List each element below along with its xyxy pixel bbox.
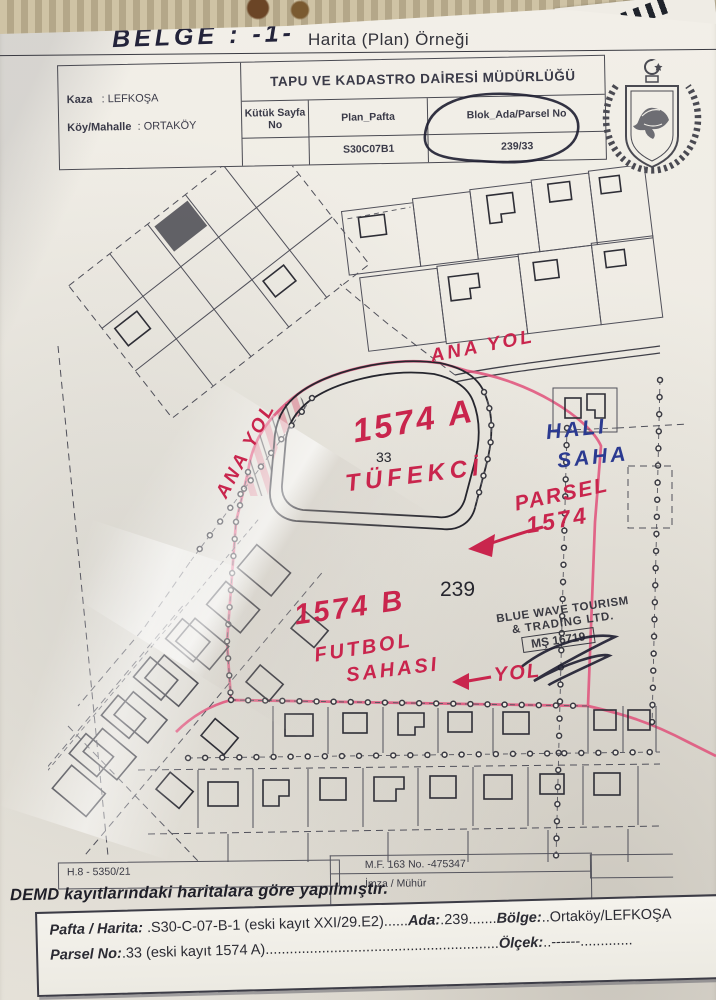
cadastral-map-svg: 33 239 bbox=[48, 166, 716, 862]
bottom-row-boundary-points bbox=[188, 752, 660, 758]
parcel-row-1 bbox=[273, 706, 656, 754]
bolge-label: Bölge: bbox=[496, 910, 542, 927]
pafta-label: Pafta / Harita: bbox=[49, 920, 143, 938]
parcel-row-2 bbox=[138, 764, 660, 834]
koy-label: Köy/Mahalle bbox=[67, 121, 131, 134]
parcel-block-topright bbox=[340, 166, 662, 354]
header-location-cell: Kaza : LEFKOŞA Köy/Mahalle : ORTAKÖY bbox=[58, 63, 243, 169]
handwritten-belge-label: BELGE : -1- bbox=[112, 19, 296, 54]
dove-icon bbox=[633, 108, 669, 139]
header-table: Kaza : LEFKOŞA Köy/Mahalle : ORTAKÖY TAP… bbox=[57, 55, 607, 171]
bottom-summary-box: Pafta / Harita: .S30-C-07-B-1 (eski kayı… bbox=[35, 894, 716, 997]
col-blok: Blok_Ada/Parsel No 239/33 bbox=[428, 95, 606, 162]
pink-line-extension-left bbox=[176, 700, 231, 732]
building-strip-far-left bbox=[48, 606, 216, 862]
ada-label: Ada: bbox=[408, 912, 441, 929]
parsel-no-label: Parsel No: bbox=[50, 946, 122, 964]
photographed-cadastral-document: { "doc": { "belge_label": "BELGE : -1-",… bbox=[0, 0, 716, 1000]
bolge-value: ..Ortaköy/LEFKOŞA bbox=[541, 906, 671, 925]
printed-parcel-33: 33 bbox=[376, 449, 392, 465]
col-blok-header: Blok_Ada/Parsel No bbox=[428, 95, 606, 135]
col-kutuk-header: Kütük Sayfa No bbox=[242, 100, 309, 138]
document-title: Harita (Plan) Örneği bbox=[308, 30, 469, 50]
emblem-collar bbox=[646, 76, 658, 82]
dark-hatched-parcel bbox=[154, 201, 207, 252]
olcek-label: Ölçek: bbox=[499, 935, 544, 952]
document-paper: BELGE : -1- Harita (Plan) Örneği Kaza : … bbox=[0, 0, 716, 1000]
printed-block-239: 239 bbox=[440, 578, 475, 601]
ada-value: .239....... bbox=[440, 911, 497, 928]
left-edge-boundary bbox=[58, 346, 108, 856]
pafta-value: .S30-C-07-B-1 (eski kayıt XXI/29.E2)....… bbox=[143, 913, 408, 936]
kaza-label: Kaza bbox=[67, 94, 93, 106]
col-kutuk: Kütük Sayfa No bbox=[242, 100, 310, 165]
state-emblem bbox=[596, 56, 708, 180]
header-right-cell: TAPU VE KADASTRO DAİRESİ MÜDÜRLÜĞÜ Kütük… bbox=[241, 56, 606, 166]
kaza-value: : LEFKOŞA bbox=[101, 92, 158, 105]
col-pafta: Plan_Pafta S30C07B1 bbox=[309, 98, 429, 164]
koy-value: : ORTAKÖY bbox=[137, 120, 196, 133]
col-blok-value: 239/33 bbox=[428, 132, 605, 163]
footer-ref-right bbox=[590, 854, 673, 879]
parsel-no-value: .33 (eski kayıt 1574 A).................… bbox=[122, 936, 499, 962]
col-kutuk-value bbox=[242, 137, 309, 165]
col-pafta-header: Plan_Pafta bbox=[309, 98, 428, 137]
right-edge-points bbox=[652, 380, 660, 726]
olcek-value: ..------............. bbox=[543, 932, 633, 950]
col-pafta-value: S30C07B1 bbox=[309, 135, 427, 164]
